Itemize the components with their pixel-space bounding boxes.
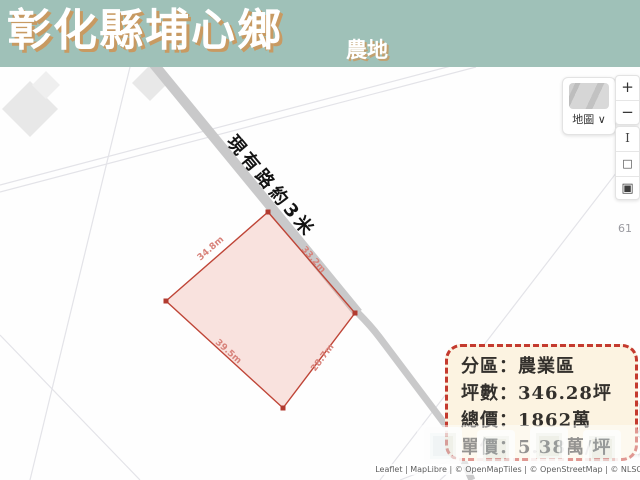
page-title: 彰化縣埔心鄉	[7, 0, 283, 64]
page-subtitle: 農地	[346, 34, 388, 64]
total-price-line: 總價：1862萬	[461, 407, 635, 434]
map-canvas[interactable]: 現有路約3米 34.8m 33.2m 39.5m 28.7m 61 地圖 ∨ +…	[0, 67, 640, 480]
draw-rectangle-button[interactable]: □	[616, 151, 639, 176]
zoom-out-button[interactable]: −	[616, 101, 639, 125]
map-attribution[interactable]: Leaflet | MapLibre | © OpenMapTiles | © …	[371, 464, 640, 475]
building-footprints	[2, 67, 168, 137]
tools-control: I □ ▣	[615, 126, 640, 200]
parcel-vertex	[266, 210, 271, 215]
road-number-label: 61	[618, 222, 632, 235]
measure-tool-button[interactable]: I	[616, 127, 639, 151]
listing-info-box: 分區：農業區 坪數：346.28坪 總價：1862萬 單價：5.38萬/坪	[445, 344, 638, 461]
screen: 彰化縣埔心鄉 農地	[0, 0, 640, 480]
parcel-polygon	[164, 210, 358, 411]
basemap-selector[interactable]: 地圖 ∨	[562, 77, 616, 135]
unit-price-line: 單價：5.38萬/坪	[461, 434, 635, 461]
zoom-in-button[interactable]: +	[616, 76, 639, 101]
zoom-control: + −	[615, 75, 640, 125]
area-line: 坪數：346.28坪	[461, 380, 635, 407]
basemap-thumbnail	[569, 83, 609, 109]
basemap-label: 地圖	[572, 113, 594, 126]
parcel-vertex	[353, 311, 358, 316]
parcel-vertex	[164, 299, 169, 304]
header-banner: 彰化縣埔心鄉 農地	[0, 0, 640, 67]
chevron-down-icon: ∨	[598, 113, 606, 126]
parcel-vertex	[281, 406, 286, 411]
fill-layer-button[interactable]: ▣	[616, 176, 639, 201]
zoning-line: 分區：農業區	[461, 353, 635, 380]
